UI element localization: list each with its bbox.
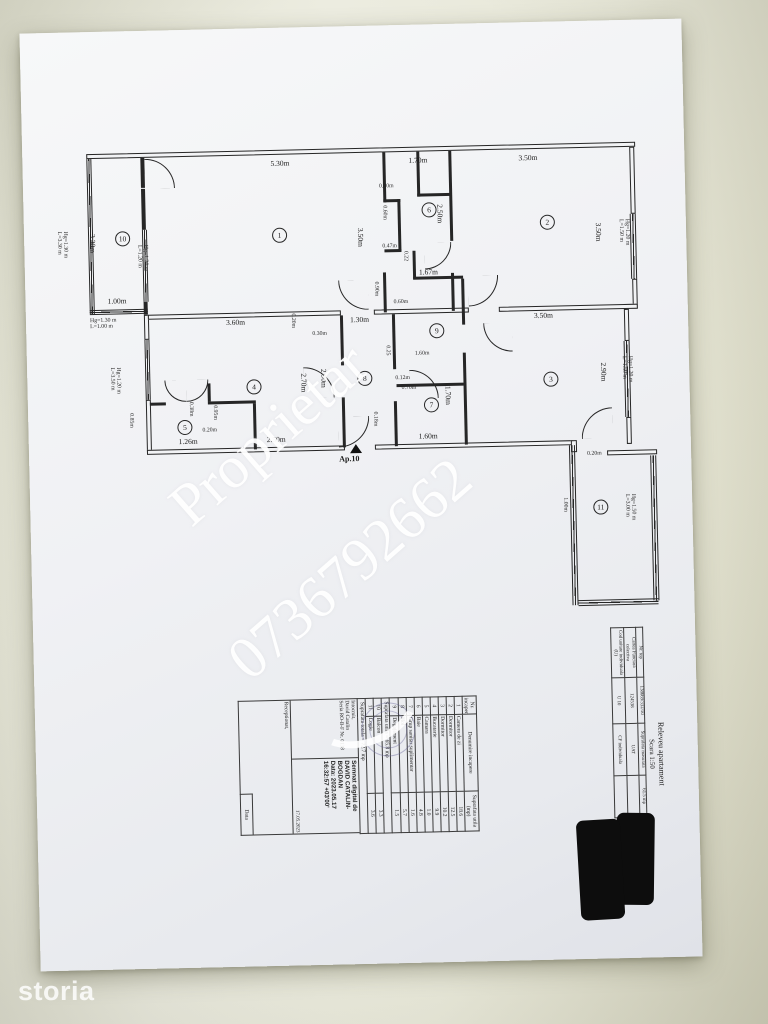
wall-segment bbox=[392, 314, 396, 369]
table-cell: UAT bbox=[625, 723, 639, 775]
dimension-label: 0.12m bbox=[395, 375, 410, 381]
window-segment bbox=[569, 445, 579, 605]
dimension-label: 0.60m bbox=[381, 205, 387, 220]
table-cell: 9.9 bbox=[432, 792, 441, 832]
table-cell: 18.6 bbox=[456, 791, 465, 831]
data-cell: Data bbox=[240, 794, 254, 835]
table-cell: 4.8 bbox=[416, 792, 425, 832]
door-arc bbox=[424, 242, 452, 270]
wall-segment bbox=[417, 193, 451, 197]
table-cell: 1.0 bbox=[424, 792, 433, 832]
table-cell: 1.6 bbox=[408, 792, 417, 832]
table-cell: 3.6 bbox=[368, 793, 377, 833]
wall-segment bbox=[397, 199, 401, 251]
dimension-label: 1.26m bbox=[179, 438, 198, 446]
dimension-label: 5.30m bbox=[270, 160, 289, 168]
dimension-label: 0.30m bbox=[312, 331, 327, 337]
window-segment bbox=[650, 455, 659, 600]
dimension-label: Hg=1.50 m L=3.00 m bbox=[624, 494, 637, 521]
dimension-label: 0.90m bbox=[373, 282, 379, 297]
door-arc bbox=[338, 416, 370, 448]
table-cell: Cartea Funciara colectiva bbox=[623, 627, 637, 677]
wall-segment bbox=[146, 400, 152, 452]
semnat-line1: Semnat digital bbox=[350, 760, 358, 802]
door-arc bbox=[186, 379, 208, 401]
room-number-circle: 5 bbox=[177, 420, 192, 435]
table-cell: 138669/332/10 bbox=[637, 677, 645, 723]
table-cell: 5.7 bbox=[400, 793, 409, 833]
wall-segment bbox=[375, 440, 573, 449]
window-segment bbox=[630, 214, 637, 279]
semnat-line6: 16:32:57 +03'00' bbox=[322, 761, 330, 808]
table-cell: 1.5 bbox=[392, 793, 401, 833]
entrance-label: Ap.10 bbox=[339, 454, 359, 463]
wall-segment bbox=[626, 417, 632, 444]
dimension-label: 1.70m bbox=[444, 386, 452, 405]
room-number-circle: 2 bbox=[540, 215, 555, 230]
dimension-label: 3.60m bbox=[226, 319, 245, 327]
door-arc bbox=[164, 380, 186, 402]
dimension-label: 0.25 bbox=[385, 345, 391, 355]
dimension-label: 3.50m bbox=[594, 222, 602, 241]
receptionat-cell: Receptionat, Data bbox=[238, 701, 293, 835]
table-cell: Cod unitate individuala (U) bbox=[611, 628, 625, 678]
door-arc bbox=[144, 158, 175, 189]
dimension-label: 1.70m bbox=[408, 156, 427, 164]
digital-signature-cell: Semnat digital de DAVID CATALIN- BOGDAN … bbox=[292, 758, 360, 833]
header-suprafata: Suprafata utila (mp) bbox=[464, 791, 479, 831]
wall-segment bbox=[499, 304, 638, 312]
header-nr: Nr. incapere bbox=[462, 696, 476, 714]
dimension-label: 0.60m bbox=[394, 299, 409, 305]
door-arc bbox=[581, 407, 613, 439]
dimension-label: 1.60m bbox=[415, 350, 430, 356]
dimension-label: 0.18m bbox=[372, 412, 378, 427]
wall-segment bbox=[629, 147, 636, 214]
window-segment bbox=[90, 309, 148, 315]
wall-segment bbox=[463, 353, 468, 445]
room-number-circle: 4 bbox=[246, 379, 261, 394]
dimension-label: Hg=1.20 m L=3.50 m bbox=[109, 367, 122, 394]
wall-segment bbox=[384, 249, 401, 252]
semnat-line3: CATALIN- bbox=[344, 781, 352, 809]
door-arc bbox=[468, 275, 499, 307]
table-cell: 5 bbox=[422, 697, 430, 715]
table-cell: 1 bbox=[454, 696, 462, 714]
room-number-circle: 10 bbox=[115, 231, 130, 246]
room-number-circle: 6 bbox=[421, 202, 436, 217]
receptionat-label: Receptionat, bbox=[283, 702, 290, 730]
table-cell: CF individuala bbox=[613, 724, 627, 776]
dimension-label: 1.00m bbox=[562, 497, 568, 512]
wall-segment bbox=[150, 402, 166, 405]
dimension-label: 2.50m bbox=[436, 204, 444, 223]
header-denumire: Denumire incapere bbox=[462, 714, 478, 791]
table-cell bbox=[627, 775, 640, 817]
wall-segment bbox=[208, 400, 256, 404]
room-number-circle: 7 bbox=[424, 397, 439, 412]
dimension-label: Hg=1.20 m L=1.50 m bbox=[621, 356, 634, 383]
room-number-circle: 3 bbox=[543, 371, 558, 386]
window-segment bbox=[578, 598, 658, 606]
table-cell: U 10 bbox=[612, 678, 626, 724]
wall-segment bbox=[461, 279, 465, 325]
dimension-label: 1.67m bbox=[419, 268, 438, 276]
wall-segment bbox=[141, 189, 146, 230]
dimension-label: 0.22 bbox=[402, 251, 408, 261]
table-cell: 61.5 mp bbox=[639, 775, 647, 817]
wall-segment bbox=[207, 383, 210, 401]
wall-segment bbox=[412, 251, 416, 279]
dimension-label: 3.50m bbox=[518, 154, 537, 162]
table-cell: 12.5 bbox=[448, 791, 457, 831]
dimension-label: Hg=1.20 m L=1.50 m bbox=[618, 219, 631, 246]
dimension-label: 0.20m bbox=[202, 427, 217, 433]
wall-segment bbox=[624, 309, 630, 341]
table-cell: 3.3 bbox=[376, 793, 385, 833]
table-cell: Nr. top bbox=[636, 627, 644, 677]
room-number-circle: 1 bbox=[272, 228, 287, 243]
document-paper: 1234567891011 5.30m1.70m3.50m3.30mHg=1.3… bbox=[19, 19, 702, 972]
storia-logo: storia bbox=[18, 976, 95, 1007]
table-cell: Suprafata masurata bbox=[638, 723, 646, 775]
room-number-circle: 11 bbox=[593, 499, 608, 514]
wall-segment bbox=[86, 142, 635, 159]
dimension-label: 1.30m bbox=[350, 316, 369, 324]
dimension-label: 2.90m bbox=[599, 362, 607, 381]
dimension-label: 0.20m bbox=[587, 451, 602, 457]
dimension-label: 3.30m bbox=[88, 234, 96, 253]
dimension-label: 0.47m bbox=[382, 243, 397, 249]
dimension-label: 0.85m bbox=[128, 413, 134, 428]
window-segment bbox=[144, 340, 150, 400]
table-cell bbox=[614, 776, 627, 818]
table-cell: 4 bbox=[430, 697, 438, 715]
dimension-label: Hg=1.30 m L=3.30 m bbox=[56, 232, 69, 259]
wall-segment bbox=[394, 401, 398, 446]
dimension-label: 0.20m bbox=[379, 183, 394, 189]
signature-date: 17.05.2023 bbox=[294, 810, 300, 833]
table-cell: 10.2 bbox=[440, 792, 449, 832]
redaction-mark bbox=[576, 818, 626, 920]
dimension-label: 3.50m bbox=[534, 312, 553, 320]
dimension-label: Hg=1.30 m L=1.00 m bbox=[90, 318, 117, 331]
door-arc bbox=[338, 280, 369, 311]
cadastral-info-table: Releveu apartament Scara 1:50 Nr. top138… bbox=[568, 626, 669, 883]
dimension-label: 0.38m bbox=[188, 402, 194, 417]
wall-segment bbox=[382, 152, 386, 202]
dimension-label: Hg=1.20 m L=1.20 m bbox=[136, 245, 149, 272]
semnat-line4: BOGDAN bbox=[336, 760, 344, 788]
table-cell: 2 bbox=[446, 696, 454, 714]
dimension-label: 0.95m bbox=[212, 405, 218, 420]
dimension-label: 1.00m bbox=[107, 297, 126, 305]
door-arc bbox=[483, 323, 513, 353]
entrance-arrow-icon bbox=[350, 444, 362, 453]
table-cell: 3 bbox=[438, 697, 446, 715]
semnat-line5: Data: 2023.05.17 bbox=[329, 761, 337, 809]
dimension-label: 3.50m bbox=[356, 228, 364, 247]
dimension-label: 0.70m bbox=[402, 385, 417, 391]
dimension-label: 1.60m bbox=[419, 432, 438, 440]
table-cell: 124538 bbox=[624, 677, 638, 723]
wall-segment bbox=[383, 272, 387, 312]
room-number-circle: 9 bbox=[429, 323, 444, 338]
dimension-label: 0.20m bbox=[290, 313, 296, 328]
